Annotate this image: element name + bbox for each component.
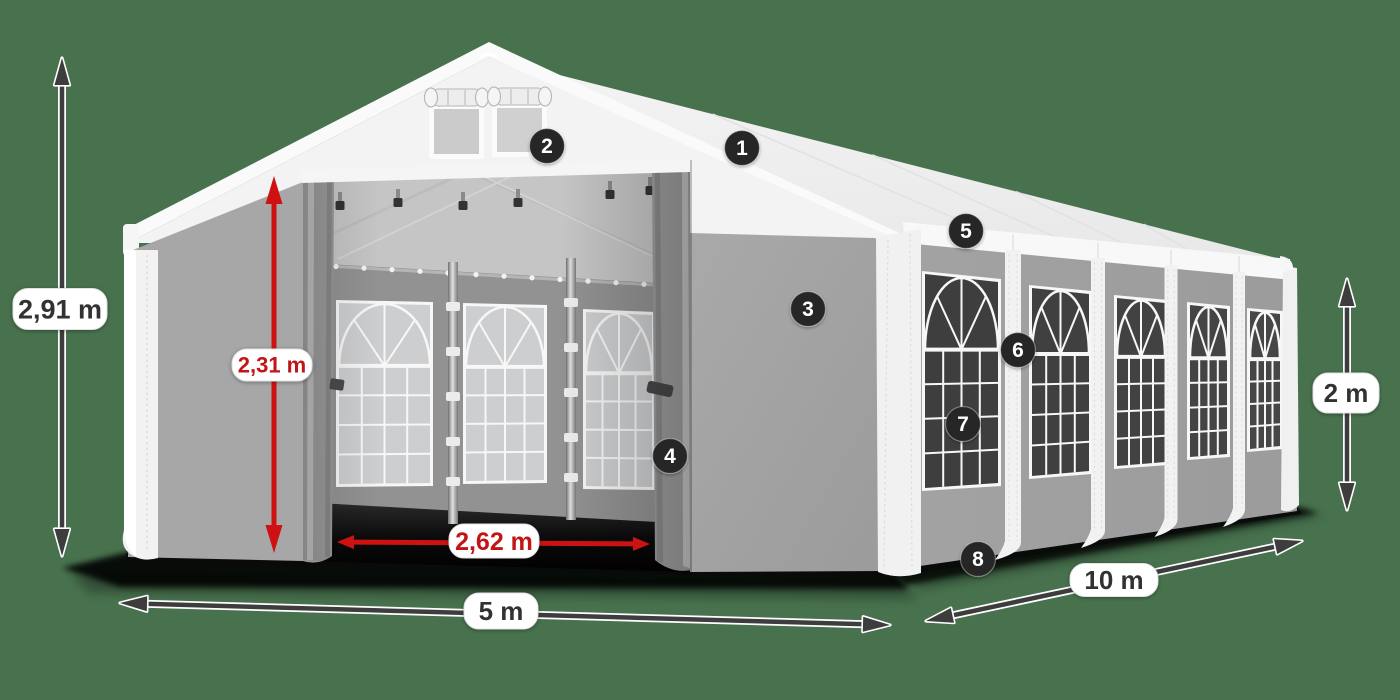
svg-text:8: 8	[972, 548, 984, 571]
svg-text:3: 3	[802, 298, 814, 321]
svg-text:6: 6	[1012, 339, 1024, 362]
svg-text:1: 1	[736, 137, 748, 160]
svg-text:7: 7	[957, 413, 969, 436]
svg-text:5: 5	[960, 220, 972, 243]
svg-text:2: 2	[541, 135, 553, 158]
svg-text:2,91 m: 2,91 m	[18, 294, 102, 324]
svg-text:2 m: 2 m	[1324, 378, 1369, 408]
svg-text:2,62 m: 2,62 m	[455, 528, 533, 556]
svg-text:4: 4	[664, 445, 676, 468]
svg-text:2,31 m: 2,31 m	[238, 353, 307, 378]
svg-text:5 m: 5 m	[479, 596, 524, 626]
svg-text:10 m: 10 m	[1084, 565, 1143, 595]
